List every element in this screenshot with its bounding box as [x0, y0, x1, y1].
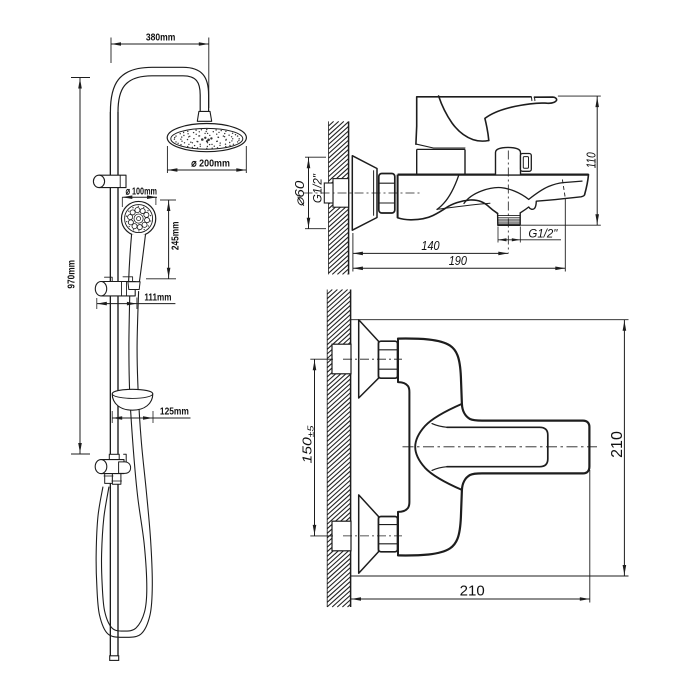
svg-text:970mm: 970mm	[67, 260, 78, 289]
svg-text:125mm: 125mm	[160, 407, 189, 418]
svg-text:⌀ 100mm: ⌀ 100mm	[126, 185, 157, 197]
svg-text:140: 140	[421, 239, 439, 253]
svg-text:245mm: 245mm	[170, 221, 181, 250]
svg-text:110: 110	[583, 152, 598, 169]
svg-text:380mm: 380mm	[146, 33, 176, 44]
svg-text:111mm: 111mm	[144, 293, 171, 304]
svg-text:⌀ 200mm: ⌀ 200mm	[191, 157, 230, 169]
svg-text:190: 190	[449, 254, 467, 268]
svg-text:G1/2": G1/2"	[528, 226, 558, 240]
svg-text:210: 210	[460, 582, 485, 599]
svg-text:G1/2": G1/2"	[310, 173, 324, 203]
svg-text:210: 210	[609, 431, 626, 458]
